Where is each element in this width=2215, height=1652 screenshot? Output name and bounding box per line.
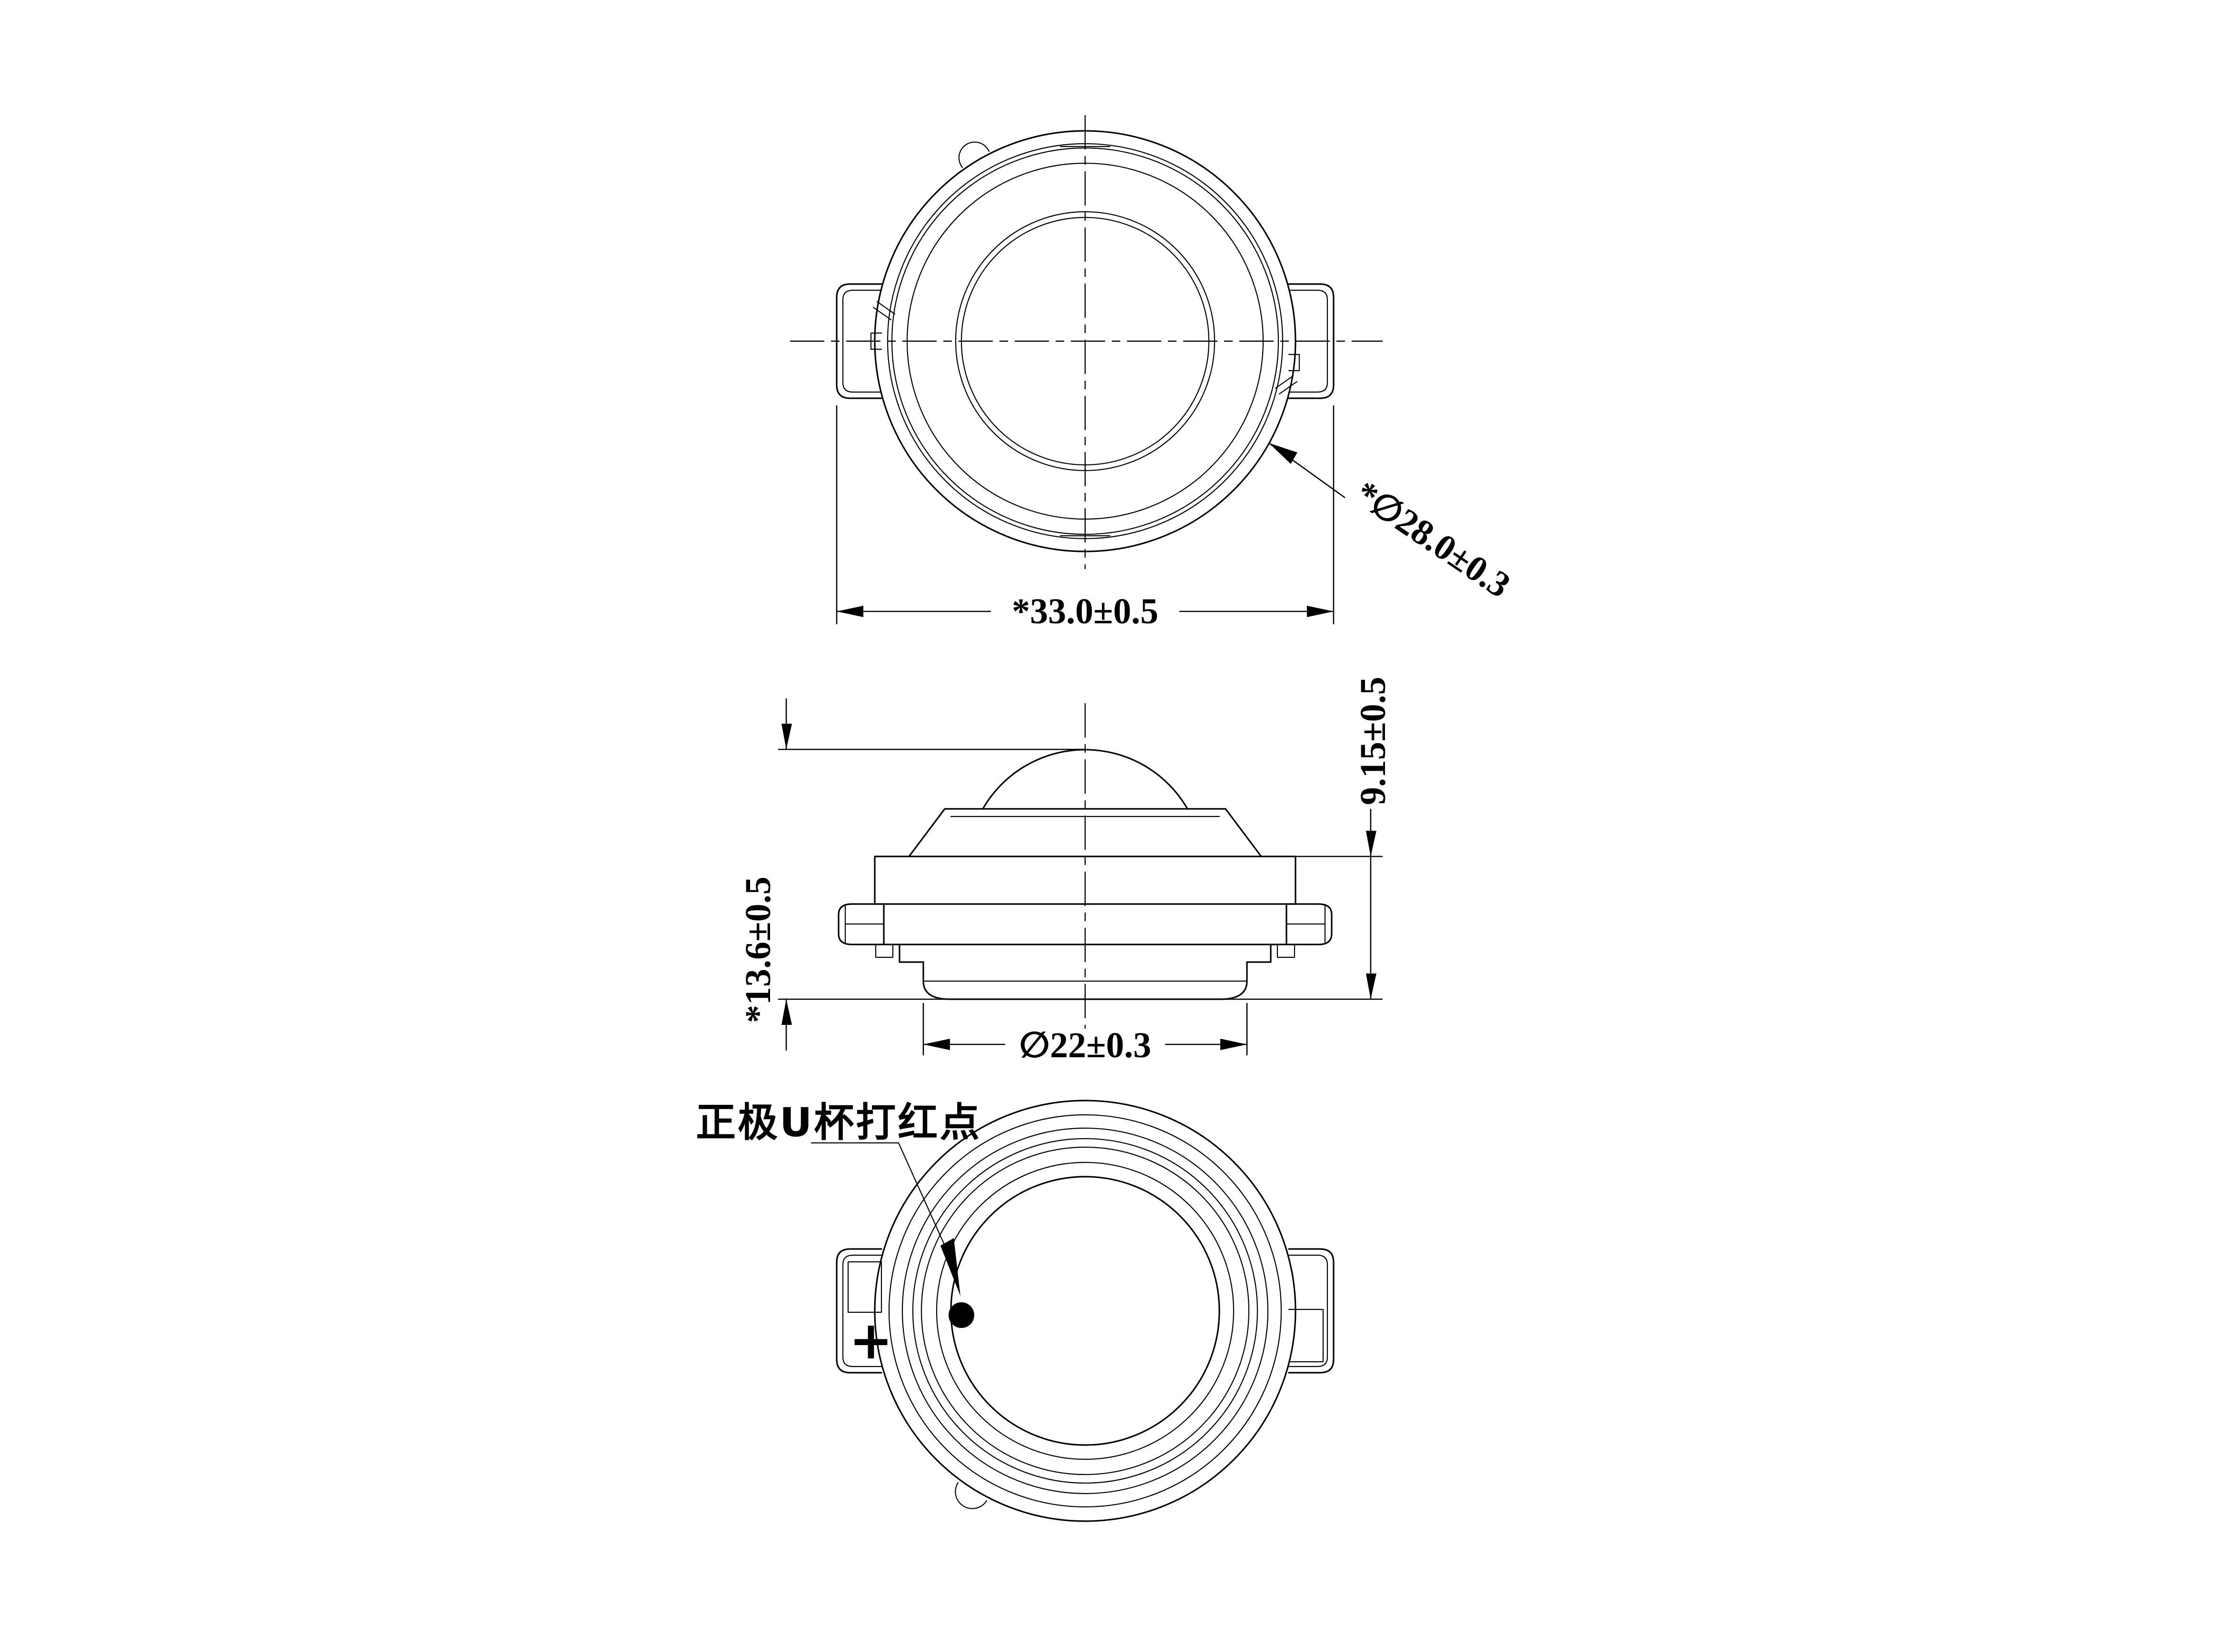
rim-bump-top-view: [959, 142, 989, 167]
top-view: *33.0±0.5 *∅28.0±0.3: [790, 115, 1518, 631]
bottom-view: + 正极U杯打红点: [696, 1099, 1334, 1521]
u-cup-bottom-circle: [951, 1177, 1219, 1445]
polarity-leader-line: [811, 1143, 950, 1257]
bottom-inner-ring: [937, 1162, 1234, 1459]
side-view: *13.6±0.5 9.15±0.5 ∅22±0.3: [738, 677, 1393, 1065]
dim-total-height: *13.6±0.5: [738, 698, 1085, 1051]
dim-total-height-label: *13.6±0.5: [738, 876, 778, 1023]
dim-cup-diameter-label: ∅22±0.3: [1019, 1025, 1151, 1065]
dim-body-height-label: 9.15±0.5: [1353, 677, 1393, 805]
side-view-right-tab: [1277, 904, 1332, 957]
dim-outer-diameter-label: *∅28.0±0.3: [1348, 473, 1517, 605]
bottom-view-left-tab: +: [837, 1249, 893, 1373]
drawing-page: *33.0±0.5 *∅28.0±0.3: [0, 0, 2215, 1652]
positive-terminal-mark: +: [849, 1310, 893, 1371]
left-tab-side-step: [876, 944, 893, 957]
dim-top-width-label: *33.0±0.5: [1012, 591, 1158, 631]
red-dot-marker: [949, 1302, 974, 1328]
rim-bump-bottom-view: [955, 1483, 987, 1509]
bottom-ring-1: [889, 1115, 1281, 1507]
polarity-note-label: 正极U杯打红点: [696, 1099, 981, 1146]
right-tab-side-step: [1277, 944, 1295, 957]
side-view-left-tab: [839, 904, 893, 957]
engineering-drawing-canvas: *33.0±0.5 *∅28.0±0.3: [0, 0, 2215, 1652]
dim-outer-diameter: *∅28.0±0.3: [1269, 443, 1518, 606]
polarity-annotation: 正极U杯打红点: [696, 1099, 981, 1328]
bottom-outer-circle: [875, 1101, 1295, 1521]
